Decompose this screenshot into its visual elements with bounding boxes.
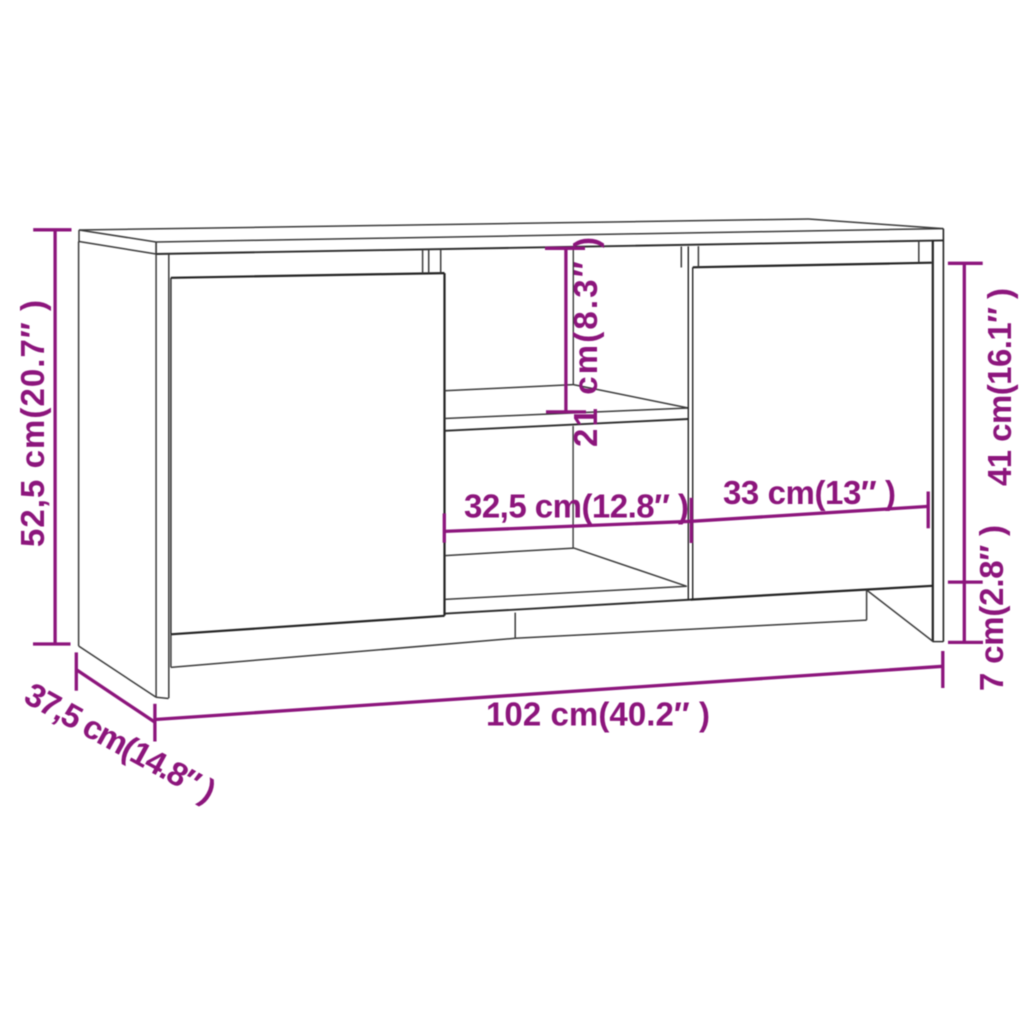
- svg-text:32,5 cm(12.8″ ): 32,5 cm(12.8″ ): [464, 488, 689, 525]
- svg-text:7 cm(2.8″ ): 7 cm(2.8″ ): [973, 525, 1010, 691]
- svg-text:33 cm(13″ ): 33 cm(13″ ): [723, 474, 896, 511]
- svg-text:102 cm(40.2″ ): 102 cm(40.2″ ): [486, 696, 710, 733]
- svg-text:21 cm(8.3″ ): 21 cm(8.3″ ): [567, 237, 604, 447]
- svg-text:52,5 cm(20.7″ ): 52,5 cm(20.7″ ): [14, 300, 51, 547]
- svg-text:41 cm(16.1″ ): 41 cm(16.1″ ): [981, 288, 1018, 486]
